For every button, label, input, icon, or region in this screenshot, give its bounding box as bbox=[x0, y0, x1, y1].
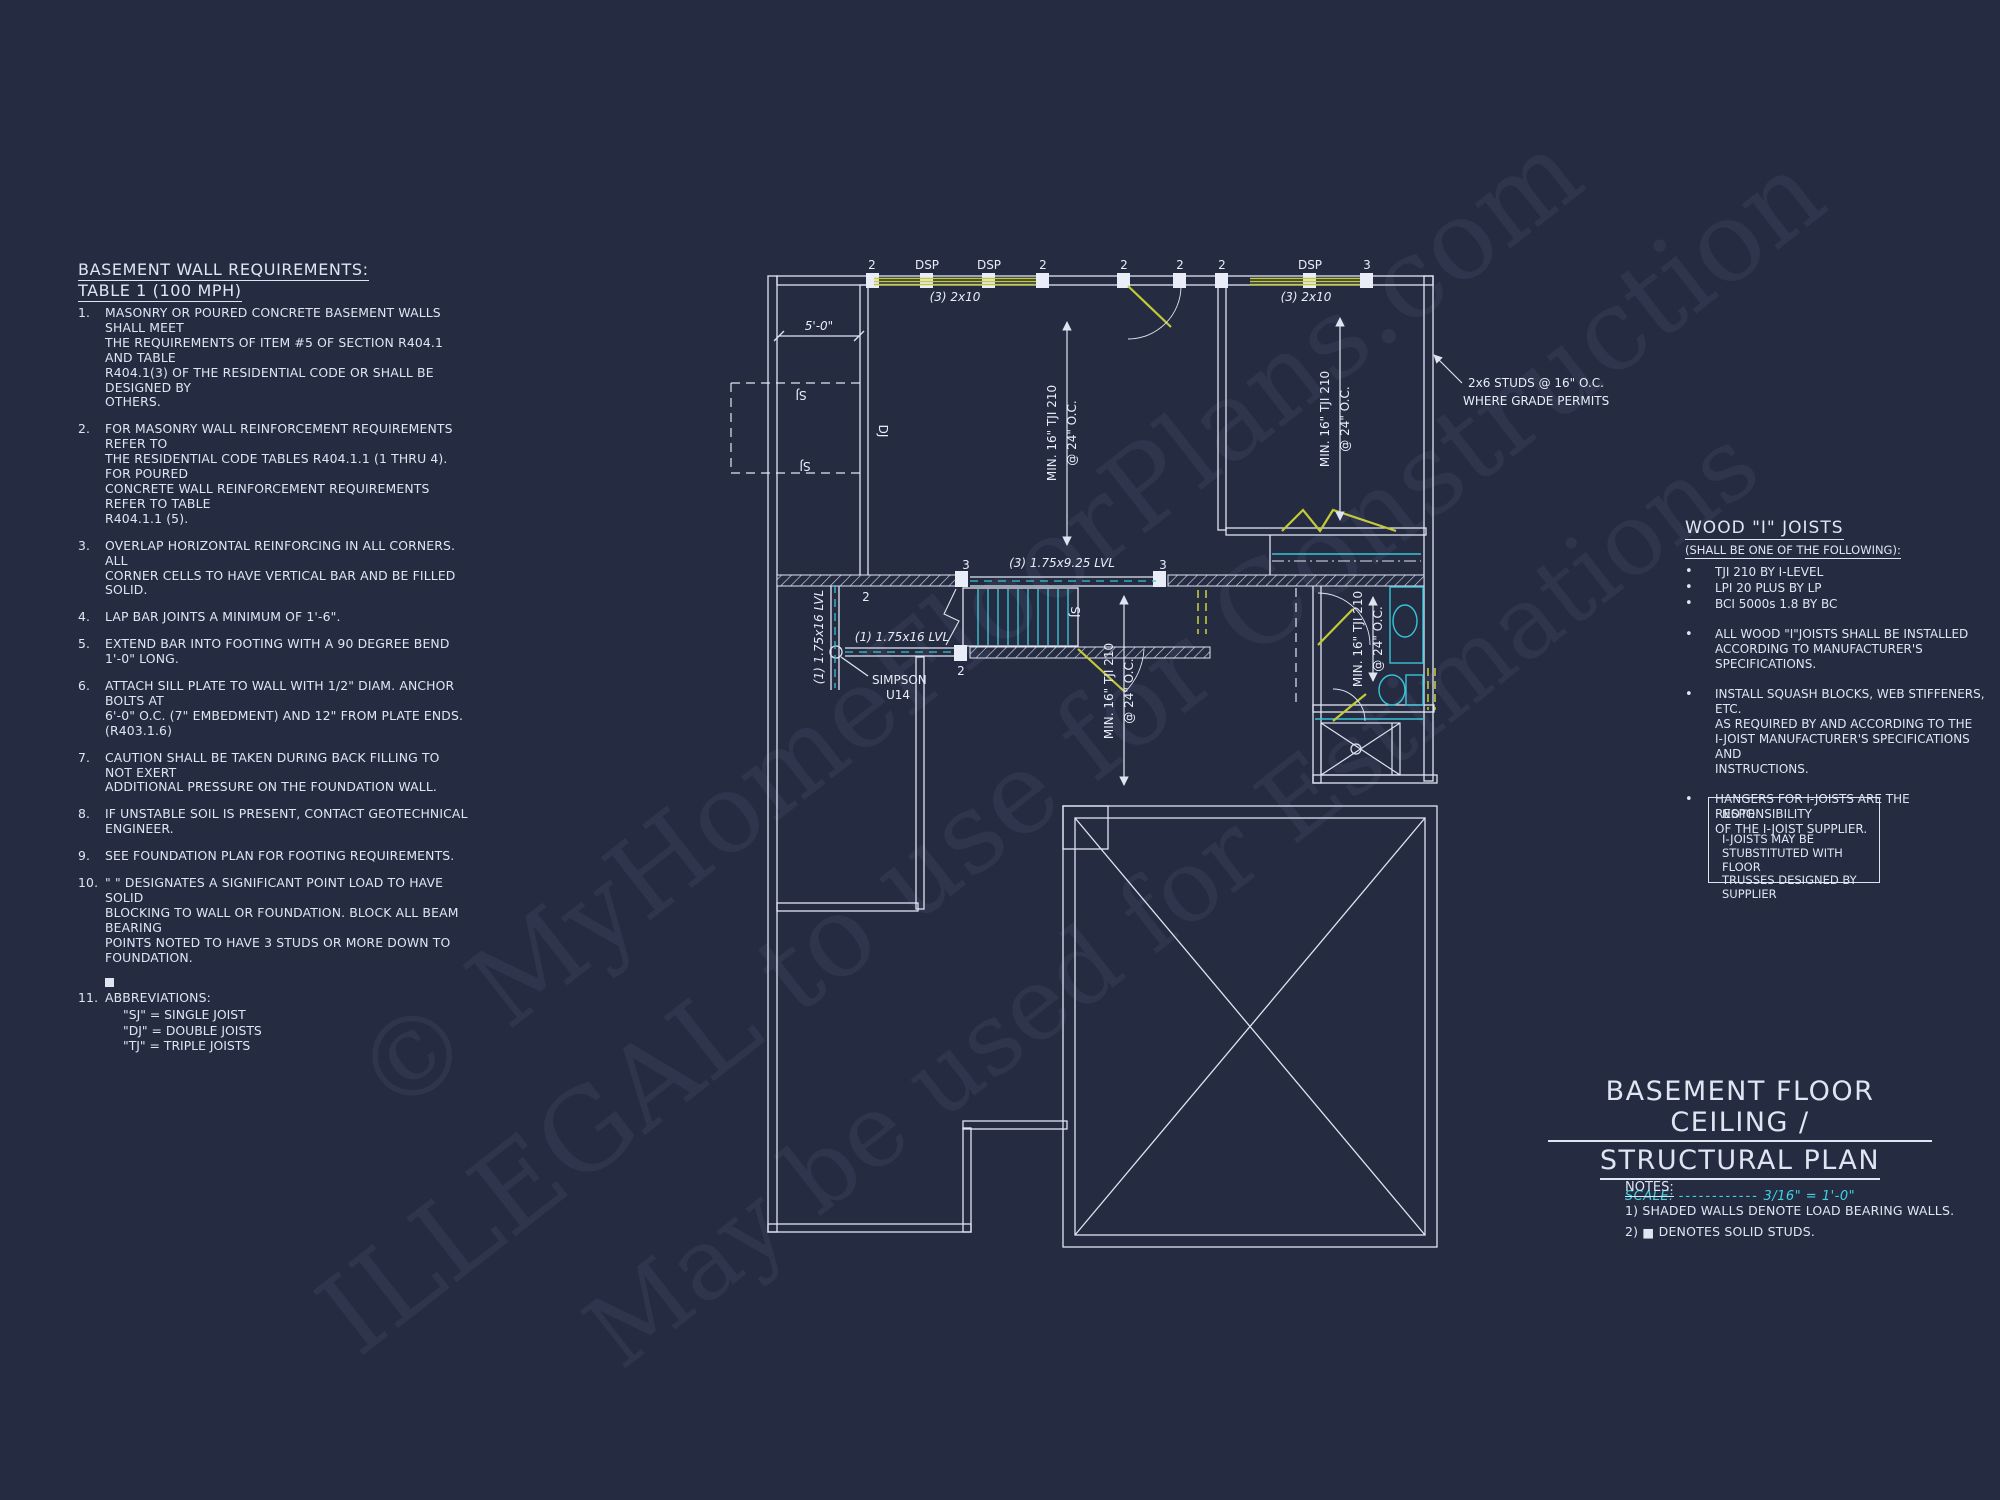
requirement-item: 2.FOR MASONRY WALL REINFORCEMENT REQUIRE… bbox=[78, 422, 470, 526]
requirement-item: 3.OVERLAP HORIZONTAL REINFORCING IN ALL … bbox=[78, 539, 470, 599]
stud-count: 3 bbox=[1363, 258, 1371, 272]
abbreviation-line: "TJ" = TRIPLE JOISTS bbox=[123, 1038, 470, 1054]
requirement-item: 6.ATTACH SILL PLATE TO WALL WITH 1/2" DI… bbox=[78, 679, 470, 739]
wood-i-joists-notes: WOOD "I" JOISTS (SHALL BE ONE OF THE FOL… bbox=[1685, 518, 2000, 837]
stud-count: 2 bbox=[1218, 258, 1226, 272]
note-box-title: NOTE: bbox=[1722, 807, 1873, 821]
wood-joists-title: WOOD "I" JOISTS bbox=[1685, 518, 2000, 540]
joist-option: •LPI 20 PLUS BY LP bbox=[1685, 580, 2000, 596]
wood-joists-subtitle: (SHALL BE ONE OF THE FOLLOWING): bbox=[1685, 543, 2000, 559]
tji-note-line1: MIN. 16" TJI 210 bbox=[1318, 371, 1332, 467]
load-bearing-walls bbox=[777, 575, 1424, 658]
stud-count: 2 bbox=[868, 258, 876, 272]
beam-2x10-label: (3) 2x10 bbox=[1281, 290, 1332, 304]
door-leaf-bath-1 bbox=[1318, 609, 1353, 645]
studs-note-line1: 2x6 STUDS @ 16" O.C. bbox=[1468, 376, 1604, 390]
simpson-hanger-line1: SIMPSON bbox=[872, 673, 927, 687]
requirement-item: 10." " DESIGNATES A SIGNIFICANT POINT LO… bbox=[78, 876, 470, 965]
dimension-5ft: 5'-0" bbox=[805, 319, 833, 333]
sheet-note-1: 1) SHADED WALLS DENOTE LOAD BEARING WALL… bbox=[1625, 1203, 1954, 1218]
tji-note-line1: MIN. 16" TJI 210 bbox=[1045, 385, 1059, 481]
sheet-notes-title: NOTES: bbox=[1625, 1180, 1954, 1197]
stud-count: 2 bbox=[1176, 258, 1184, 272]
requirement-item: 11.ABBREVIATIONS: bbox=[78, 991, 470, 1006]
single-joist-tag: SJ bbox=[799, 459, 810, 473]
lvl-beam-label: (3) 1.75x9.25 LVL bbox=[1009, 556, 1115, 570]
solid-blocking-icon bbox=[105, 978, 114, 987]
sink bbox=[1393, 605, 1417, 637]
door-leaf-top bbox=[1128, 286, 1171, 327]
sheet-title-line1: BASEMENT FLOOR CEILING / bbox=[1548, 1076, 1932, 1142]
top-wall-stud-counts: 2 DSP DSP 2 2 2 2 DSP 3 bbox=[868, 258, 1371, 272]
shower-unit bbox=[1321, 723, 1400, 775]
door-leaf-bath-2 bbox=[1333, 694, 1366, 721]
requirement-item: 5.EXTEND BAR INTO FOOTING WITH A 90 DEGR… bbox=[78, 637, 470, 667]
sheet-notes: NOTES: 1) SHADED WALLS DENOTE LOAD BEARI… bbox=[1625, 1180, 1954, 1239]
requirement-item: 1.MASONRY OR POURED CONCRETE BASEMENT WA… bbox=[78, 306, 470, 410]
stud-count: 3 bbox=[962, 558, 970, 572]
studs-note-line2: WHERE GRADE PERMITS bbox=[1463, 394, 1609, 408]
double-joist-tag: DJ bbox=[876, 425, 890, 438]
stud-count: 2 bbox=[862, 590, 870, 604]
tji-note-line1: MIN. 16" TJI 210 bbox=[1351, 591, 1365, 687]
stud-count: 2 bbox=[1120, 258, 1128, 272]
tji-note-line1: MIN. 16" TJI 210 bbox=[1102, 643, 1116, 739]
single-joist-tag: SJ bbox=[795, 388, 806, 402]
stud-count: 3 bbox=[1159, 558, 1167, 572]
lvl16-label-h: (1) 1.75x16 LVL bbox=[855, 630, 949, 644]
solid-stud-icon: ■ bbox=[1642, 1225, 1654, 1240]
vanity-counter bbox=[1390, 587, 1423, 663]
studs-note-leader bbox=[1434, 355, 1462, 383]
lvl16-label-v: (1) 1.75x16 LVL bbox=[812, 590, 826, 684]
sheet-title-line2: STRUCTURAL PLAN bbox=[1548, 1145, 1932, 1180]
dsp-label: DSP bbox=[977, 258, 1001, 272]
walls-group bbox=[768, 276, 1437, 1232]
dsp-label: DSP bbox=[1298, 258, 1322, 272]
joist-option: •BCI 5000s 1.8 BY BC bbox=[1685, 596, 2000, 612]
basement-wall-requirements: BASEMENT WALL REQUIREMENTS: TABLE 1 (100… bbox=[78, 260, 470, 1054]
stair-treads bbox=[978, 589, 1068, 645]
yellow-dashed-headers bbox=[1198, 590, 1435, 710]
requirement-item: 8.IF UNSTABLE SOIL IS PRESENT, CONTACT G… bbox=[78, 807, 470, 837]
requirement-item: 4.LAP BAR JOINTS A MINIMUM OF 1'-6". bbox=[78, 610, 470, 625]
note-box-body: I-JOISTS MAY BE STUBSTITUTED WITH FLOOR … bbox=[1722, 833, 1873, 902]
blueprint-page: 2 DSP DSP 2 2 2 2 DSP 3 (3) 2x10 (3) 2x1… bbox=[0, 0, 2000, 1500]
tji-note-line2: @ 24" O.C. bbox=[1122, 658, 1136, 723]
toilet-tank bbox=[1406, 675, 1423, 705]
sheet-note-2: 2) ■ DENOTES SOLID STUDS. bbox=[1625, 1224, 1954, 1239]
single-joist-tag: SJ bbox=[1068, 606, 1082, 617]
solid-stud-blocks bbox=[866, 273, 1373, 661]
stud-count: 2 bbox=[957, 664, 965, 678]
requirements-subtitle: TABLE 1 (100 MPH) bbox=[78, 281, 470, 302]
abbreviation-line: "SJ" = SINGLE JOIST bbox=[123, 1007, 470, 1023]
i-joist-substitution-note-box: NOTE: I-JOISTS MAY BE STUBSTITUTED WITH … bbox=[1708, 797, 1880, 883]
joist-option: •TJI 210 BY I-LEVEL bbox=[1685, 564, 2000, 580]
tji-note-line2: @ 24" O.C. bbox=[1338, 386, 1352, 451]
stud-count: 2 bbox=[1039, 258, 1047, 272]
abbreviation-line: "DJ" = DOUBLE JOISTS bbox=[123, 1023, 470, 1039]
requirements-title: BASEMENT WALL REQUIREMENTS: bbox=[78, 260, 470, 281]
simpson-hanger-line2: U14 bbox=[886, 688, 910, 702]
tji-notes: MIN. 16" TJI 210 @ 24" O.C. MIN. 16" TJI… bbox=[1045, 371, 1385, 739]
joist-note: •INSTALL SQUASH BLOCKS, WEB STIFFENERS, … bbox=[1685, 687, 2000, 777]
dsp-label: DSP bbox=[915, 258, 939, 272]
requirement-item: 7.CAUTION SHALL BE TAKEN DURING BACK FIL… bbox=[78, 751, 470, 796]
tji-note-line2: @ 24" O.C. bbox=[1065, 400, 1079, 465]
requirement-item: 9.SEE FOUNDATION PLAN FOR FOOTING REQUIR… bbox=[78, 849, 470, 864]
x-braced-room bbox=[1063, 806, 1437, 1247]
tji-note-line2: @ 24" O.C. bbox=[1371, 606, 1385, 671]
toilet-bowl bbox=[1379, 675, 1405, 705]
joist-note: •ALL WOOD "I"JOISTS SHALL BE INSTALLED A… bbox=[1685, 627, 2000, 672]
beam-2x10-label: (3) 2x10 bbox=[930, 290, 981, 304]
